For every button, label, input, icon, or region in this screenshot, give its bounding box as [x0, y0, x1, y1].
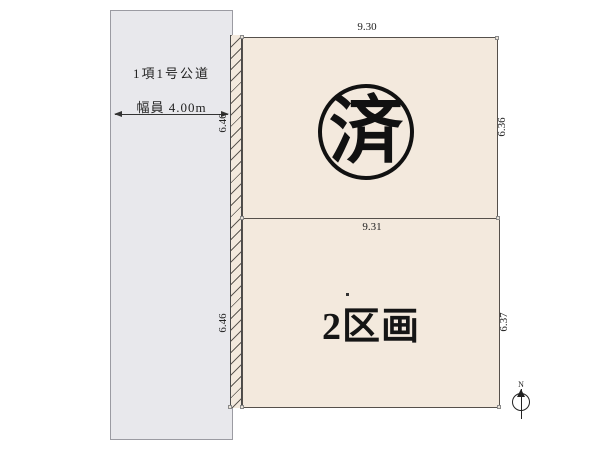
arrow-left-icon — [114, 111, 122, 117]
lot-layout-diagram: 1項1号公道 幅員 4.00m 済 2区画 9.30 9.31 6.36 6.3… — [0, 0, 600, 450]
compass-ring — [512, 393, 530, 411]
road-width-arrow — [115, 114, 228, 115]
survey-point-dot — [346, 293, 349, 296]
road-area: 1項1号公道 幅員 4.00m — [110, 10, 233, 440]
compass-north-label: N — [506, 380, 536, 389]
dim-plot2-left: 6.46 — [216, 307, 230, 339]
dim-plot2-right: 6.37 — [497, 306, 511, 338]
dim-plot1-left: 6.46 — [216, 107, 230, 139]
plot-2-label: 2区画 — [242, 295, 500, 350]
dim-plot1-top: 9.30 — [342, 21, 392, 33]
corner-marker — [497, 405, 501, 409]
dim-plot1-right: 6.36 — [495, 111, 509, 143]
corner-marker — [240, 35, 244, 39]
sold-stamp: 済 — [318, 84, 414, 180]
road-name-label: 1項1号公道 — [111, 63, 232, 82]
corner-marker — [240, 405, 244, 409]
corner-marker — [495, 36, 499, 40]
setback-hatch-strip — [230, 35, 242, 408]
corner-marker — [240, 216, 244, 220]
dim-plot2-top: 9.31 — [347, 221, 397, 233]
compass-icon: N — [506, 380, 536, 422]
corner-marker — [228, 405, 232, 409]
corner-marker — [496, 216, 500, 220]
